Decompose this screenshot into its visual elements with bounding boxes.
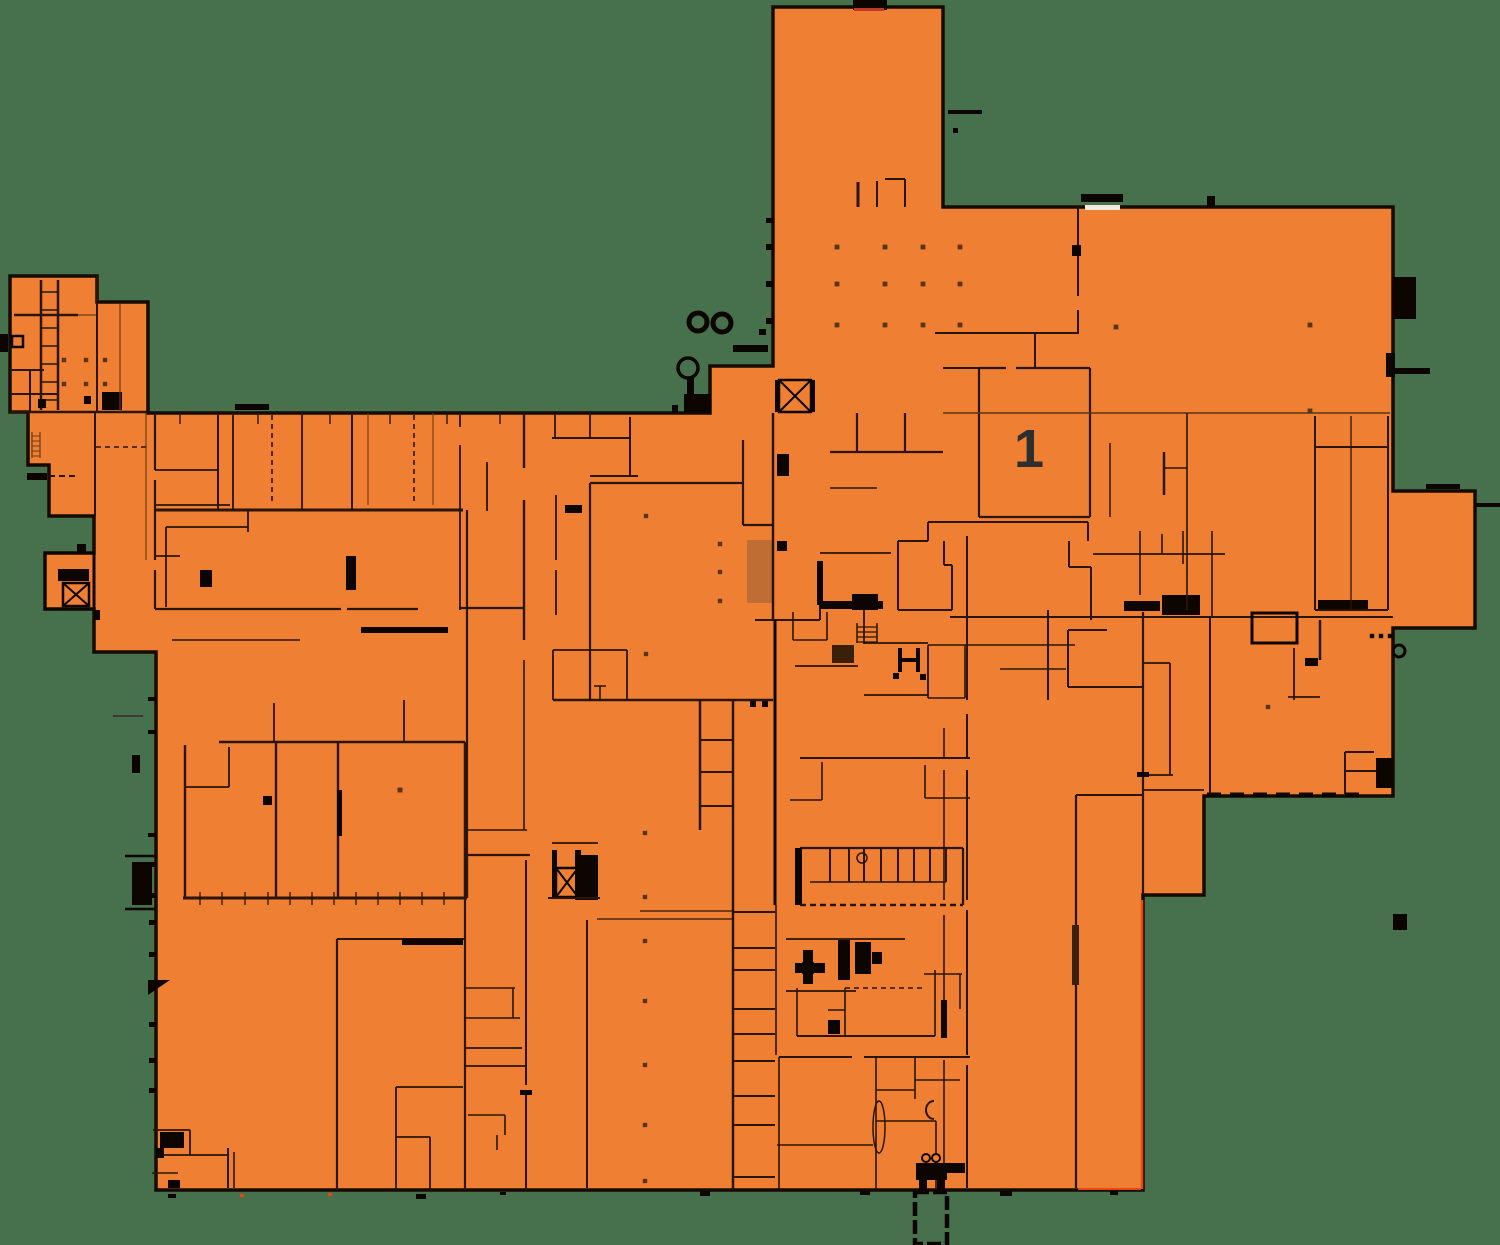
svg-text:1: 1 — [1014, 419, 1044, 479]
